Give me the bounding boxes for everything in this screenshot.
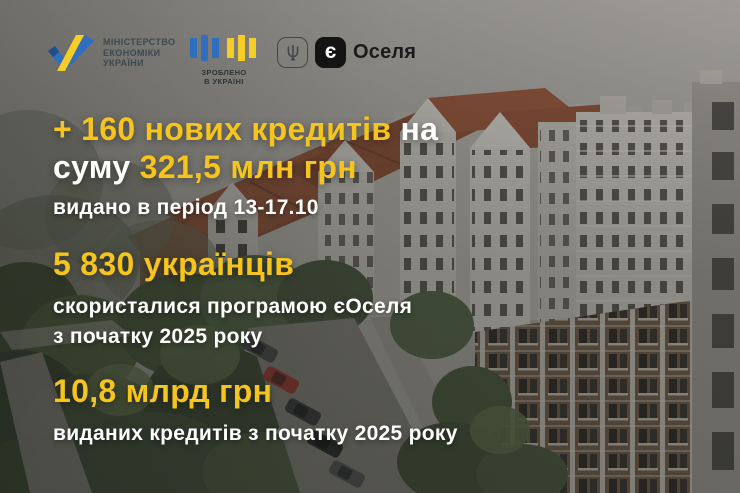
stat-new-credits: + 160 нових кредитів на суму 321,5 млн г…: [53, 110, 438, 223]
stat3-headline: 10,8 млрд грн: [53, 372, 458, 410]
stat1-headline-line1: + 160 нових кредитів на: [53, 110, 438, 148]
stat1-accent-1: + 160 нових кредитів: [53, 111, 391, 147]
stat1-accent-2: 321,5 млн грн: [140, 149, 357, 185]
tryzub-icon: [277, 37, 308, 68]
stat1-rest-1: на: [391, 111, 438, 147]
ministry-of-economy-logo: МІНІСТЕРСТВО ЕКОНОМІКИ УКРАЇНИ: [48, 35, 175, 71]
stat2-line2: з початку 2025 року: [53, 322, 412, 352]
ministry-line-1: МІНІСТЕРСТВО: [103, 37, 175, 48]
stat2-line1: скористалися програмою єОселя: [53, 292, 412, 322]
stat1-rest-2: суму: [53, 149, 140, 185]
ministry-logo-icon: [48, 35, 94, 71]
header-logos: МІНІСТЕРСТВО ЕКОНОМІКИ УКРАЇНИ ЗРОБЛЕНО …: [0, 0, 740, 95]
ministry-line-3: УКРАЇНИ: [103, 58, 175, 69]
eoselia-e-letter: є: [325, 40, 337, 64]
banner: МІНІСТЕРСТВО ЕКОНОМІКИ УКРАЇНИ ЗРОБЛЕНО …: [0, 0, 740, 493]
stat-total-issued: 10,8 млрд грн виданих кредитів з початку…: [53, 372, 458, 449]
stat3-subline: виданих кредитів з початку 2025 року: [53, 419, 458, 449]
ministry-line-2: ЕКОНОМІКИ: [103, 48, 175, 59]
miu-line-2: В УКРАЇНІ: [190, 78, 258, 87]
made-in-ukraine-logo: ЗРОБЛЕНО В УКРАЇНІ: [190, 35, 258, 86]
eoselia-logo: є Оселя: [277, 37, 416, 68]
made-in-ukraine-text: ЗРОБЛЕНО В УКРАЇНІ: [190, 69, 258, 86]
stat2-headline: 5 830 українців: [53, 245, 412, 283]
ministry-logo-text: МІНІСТЕРСТВО ЕКОНОМІКИ УКРАЇНИ: [103, 37, 175, 69]
stat1-headline-line2: суму 321,5 млн грн: [53, 148, 438, 186]
stat-users: 5 830 українців скористалися програмою є…: [53, 245, 412, 352]
stat1-subline: видано в період 13-17.10: [53, 193, 438, 223]
eoselia-e-icon: є: [315, 37, 346, 68]
eoselia-brand-name: Оселя: [353, 41, 416, 64]
made-in-ukraine-bars-icon: [190, 35, 258, 61]
